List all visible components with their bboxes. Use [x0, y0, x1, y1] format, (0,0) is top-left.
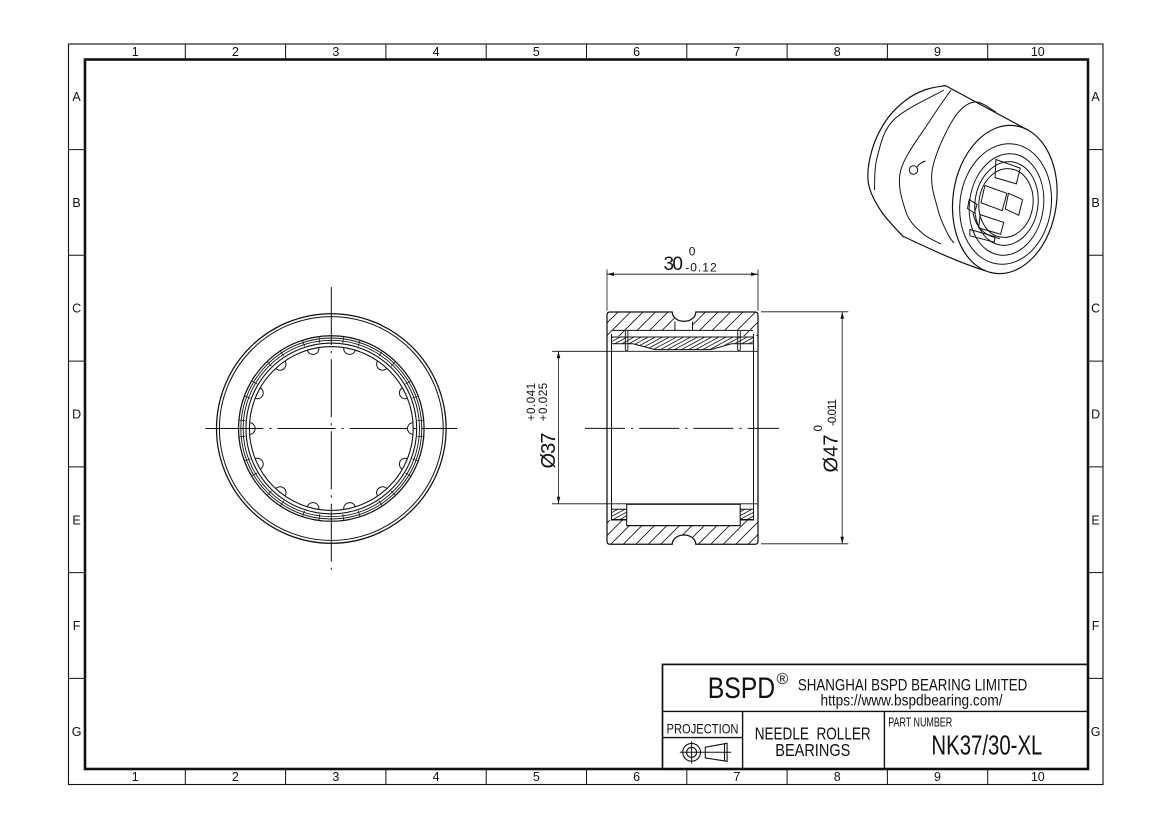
- svg-text:G: G: [72, 725, 82, 739]
- svg-text:7: 7: [733, 45, 740, 59]
- svg-text:A: A: [72, 90, 81, 104]
- svg-text:PART NUMBER: PART NUMBER: [888, 715, 952, 729]
- svg-text:C: C: [72, 302, 81, 316]
- svg-text:5: 5: [533, 45, 540, 59]
- svg-text:9: 9: [934, 45, 941, 59]
- svg-text:E: E: [1091, 513, 1099, 527]
- svg-text:A: A: [1091, 90, 1100, 104]
- svg-text:F: F: [1092, 619, 1100, 633]
- svg-text:https://www.bspdbearing.com/: https://www.bspdbearing.com/: [821, 693, 1004, 710]
- svg-text:®: ®: [777, 671, 789, 688]
- svg-text:F: F: [73, 619, 81, 633]
- svg-text:-0.011: -0.011: [827, 399, 839, 426]
- svg-text:BSPD: BSPD: [708, 672, 776, 705]
- svg-text:9: 9: [934, 770, 941, 784]
- svg-text:BEARINGS: BEARINGS: [775, 740, 850, 760]
- svg-text:10: 10: [1031, 45, 1045, 59]
- svg-text:6: 6: [633, 45, 640, 59]
- svg-text:5: 5: [533, 770, 540, 784]
- svg-text:1: 1: [132, 770, 139, 784]
- svg-text:2: 2: [232, 770, 239, 784]
- svg-text:D: D: [1091, 408, 1100, 422]
- svg-text:Ø37: Ø37: [538, 433, 560, 469]
- svg-text:7: 7: [733, 770, 740, 784]
- svg-text:3: 3: [332, 45, 339, 59]
- svg-text:0: 0: [689, 245, 696, 259]
- svg-text:B: B: [72, 196, 80, 210]
- svg-text:NK37/30-XL: NK37/30-XL: [931, 730, 1042, 761]
- svg-text:+0.041: +0.041: [526, 383, 538, 422]
- svg-text:2: 2: [232, 45, 239, 59]
- svg-text:0: 0: [813, 425, 825, 431]
- svg-text:30: 30: [664, 254, 684, 275]
- svg-text:6: 6: [633, 770, 640, 784]
- svg-text:E: E: [72, 513, 80, 527]
- svg-text:4: 4: [433, 45, 440, 59]
- svg-text:3: 3: [332, 770, 339, 784]
- svg-text:PROJECTION: PROJECTION: [667, 721, 739, 737]
- svg-text:10: 10: [1031, 770, 1045, 784]
- svg-text:8: 8: [834, 45, 841, 59]
- svg-text:-0.12: -0.12: [685, 261, 717, 275]
- svg-text:B: B: [1091, 196, 1099, 210]
- svg-text:G: G: [1091, 725, 1101, 739]
- svg-text:8: 8: [834, 770, 841, 784]
- svg-text:C: C: [1091, 302, 1100, 316]
- svg-text:1: 1: [132, 45, 139, 59]
- svg-text:Ø47: Ø47: [821, 435, 843, 473]
- svg-text:4: 4: [433, 770, 440, 784]
- svg-text:D: D: [72, 408, 81, 422]
- svg-text:+0.025: +0.025: [538, 383, 550, 422]
